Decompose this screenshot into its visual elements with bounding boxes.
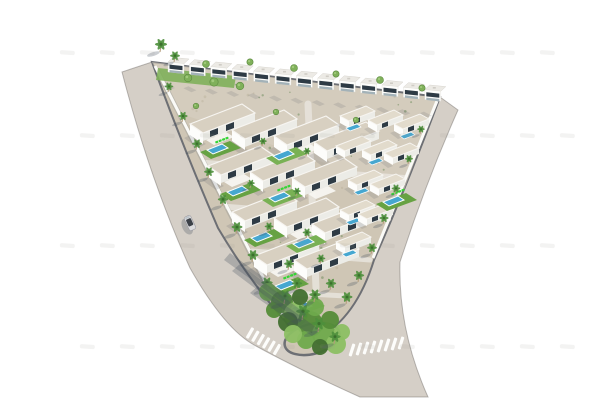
watermark-dash <box>200 344 215 349</box>
roof-ac-unit <box>197 62 200 64</box>
palm-core <box>395 187 397 189</box>
speckle <box>335 267 338 270</box>
palm-tree <box>147 38 168 58</box>
watermark-dash <box>80 133 95 138</box>
bush-crown <box>333 71 339 77</box>
palm-core <box>250 182 252 184</box>
watermark-dash <box>260 50 275 55</box>
vegetation-blob <box>321 311 339 329</box>
bush-highlight <box>292 66 294 68</box>
bush <box>291 65 298 72</box>
palm-core <box>330 282 332 284</box>
watermark-dash <box>480 133 495 138</box>
palm-core <box>306 150 308 152</box>
bush-crown <box>247 59 253 65</box>
palm-core <box>168 85 170 87</box>
roof-ac-unit <box>240 66 243 68</box>
speckle <box>410 101 412 103</box>
bush-highlight <box>378 78 380 80</box>
bush <box>210 78 218 86</box>
roof-ac-unit <box>347 78 350 80</box>
palm-core <box>317 322 320 325</box>
palm-core <box>314 293 317 296</box>
watermark-dash <box>140 50 155 55</box>
bush-highlight <box>204 62 206 64</box>
watermark-dash <box>60 50 75 55</box>
bush-crown <box>210 78 218 86</box>
watermark-dash <box>60 243 75 248</box>
watermark-dash <box>340 50 355 55</box>
bush <box>333 71 339 77</box>
palm-core <box>208 171 210 173</box>
palm-core <box>160 43 163 46</box>
vegetation-blob <box>306 298 324 316</box>
palm-core <box>420 128 422 130</box>
watermark-dash <box>560 344 575 349</box>
palm-core <box>334 335 337 338</box>
palm-core <box>371 247 373 249</box>
watermark-dash <box>520 133 535 138</box>
palm-core <box>288 263 290 265</box>
watermark-dash <box>420 50 435 55</box>
watermark-dash <box>100 50 115 55</box>
palm-core <box>358 274 360 276</box>
palm-core <box>306 231 308 233</box>
speckle <box>398 104 400 106</box>
palm-core <box>196 143 198 145</box>
bush-crown <box>377 77 384 84</box>
roof-ac-unit <box>390 82 393 84</box>
palm-core <box>174 55 176 57</box>
watermark-dash <box>240 344 255 349</box>
watermark-dash <box>540 50 555 55</box>
bush <box>353 117 359 123</box>
bush-highlight <box>354 118 356 120</box>
roof-ac-unit <box>369 80 372 82</box>
bush-highlight <box>194 104 196 106</box>
speckle <box>298 113 300 115</box>
watermark-dash <box>120 344 135 349</box>
bush-highlight <box>211 79 214 82</box>
bush <box>273 109 279 115</box>
palm-core <box>346 296 349 299</box>
palm-core <box>222 198 224 200</box>
watermark-dash <box>440 344 455 349</box>
bush-crown <box>236 82 244 90</box>
roof-ac-unit <box>262 69 265 71</box>
bush-crown <box>184 74 192 82</box>
watermark-dash <box>380 50 395 55</box>
palm-core <box>236 226 239 229</box>
bush <box>193 103 199 109</box>
speckle <box>195 110 197 112</box>
palm-core <box>262 140 264 142</box>
bush-highlight <box>274 110 276 112</box>
bush-crown <box>291 65 298 72</box>
bush-highlight <box>186 76 189 79</box>
watermark-dash <box>100 243 115 248</box>
roof-ac-unit <box>411 85 414 87</box>
bush-crown <box>419 85 425 91</box>
bush-crown <box>193 103 199 109</box>
watermark-dash <box>420 243 435 248</box>
bush-crown <box>203 61 210 68</box>
bush <box>247 59 253 65</box>
roof-ac-unit <box>219 64 222 66</box>
watermark-dash <box>180 50 195 55</box>
palm-core <box>252 254 255 257</box>
watermark-dash <box>540 243 555 248</box>
vegetation-blob <box>284 325 302 343</box>
watermark-dash <box>500 243 515 248</box>
bush-crown <box>353 117 359 123</box>
watermark-dash <box>220 50 235 55</box>
palm-core <box>296 282 298 284</box>
bush-highlight <box>248 60 250 62</box>
watermark-dash <box>500 50 515 55</box>
speckle <box>289 92 291 94</box>
watermark-dash <box>140 243 155 248</box>
watermark-dash <box>80 344 95 349</box>
palm-core <box>268 225 270 227</box>
speckle <box>280 242 282 244</box>
speckle <box>201 100 203 102</box>
bush-highlight <box>334 72 336 74</box>
watermark-dash <box>160 344 175 349</box>
roof-ac-unit <box>283 71 286 73</box>
bush <box>377 77 384 84</box>
speckle <box>204 95 207 98</box>
bush <box>203 61 210 68</box>
watermark-dash <box>460 50 475 55</box>
watermark-dash <box>300 50 315 55</box>
speckle <box>262 94 264 96</box>
watermark-dash <box>460 243 475 248</box>
palm-core <box>182 115 184 117</box>
bush <box>419 85 425 91</box>
roof-ac-unit <box>304 73 307 75</box>
bush <box>236 82 244 90</box>
watermark-dash <box>520 344 535 349</box>
bush-highlight <box>420 86 422 88</box>
speckle <box>351 155 353 157</box>
watermark-dash <box>560 133 575 138</box>
watermark-dash <box>480 344 495 349</box>
speckle <box>341 187 343 189</box>
bush-highlight <box>238 84 241 87</box>
watermark-dash <box>120 133 135 138</box>
roof-ac-unit <box>433 87 436 89</box>
bush <box>184 74 192 82</box>
development-render <box>0 0 600 400</box>
aerial-render-canvas <box>0 0 600 400</box>
speckle <box>383 169 385 171</box>
palm-core <box>296 190 298 192</box>
palm-core <box>408 158 410 160</box>
speckle <box>321 276 324 279</box>
palm-core <box>383 217 385 219</box>
speckle <box>341 235 343 237</box>
palm-core <box>320 257 322 259</box>
bush-crown <box>273 109 279 115</box>
roof-ac-unit <box>326 76 329 78</box>
